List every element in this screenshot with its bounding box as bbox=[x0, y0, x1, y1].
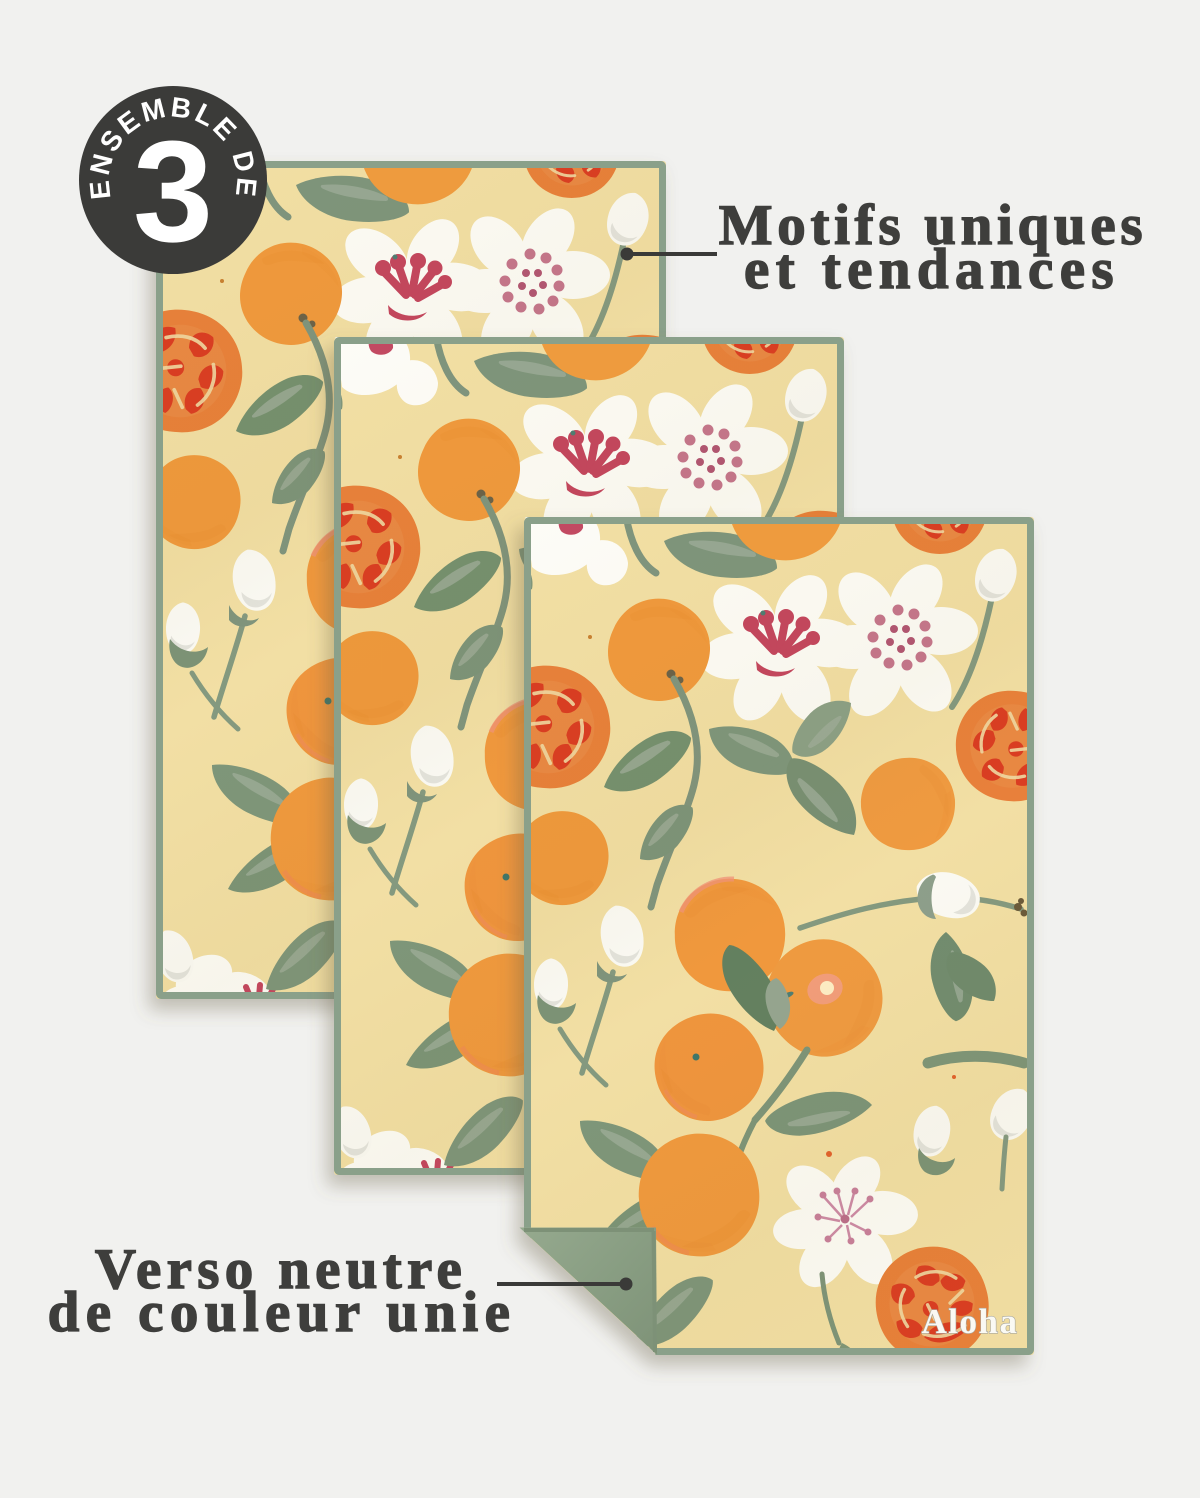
svg-text:et tendances: et tendances bbox=[744, 238, 1120, 301]
svg-text:de couleur unie: de couleur unie bbox=[48, 1281, 517, 1344]
svg-text:3: 3 bbox=[133, 111, 213, 272]
